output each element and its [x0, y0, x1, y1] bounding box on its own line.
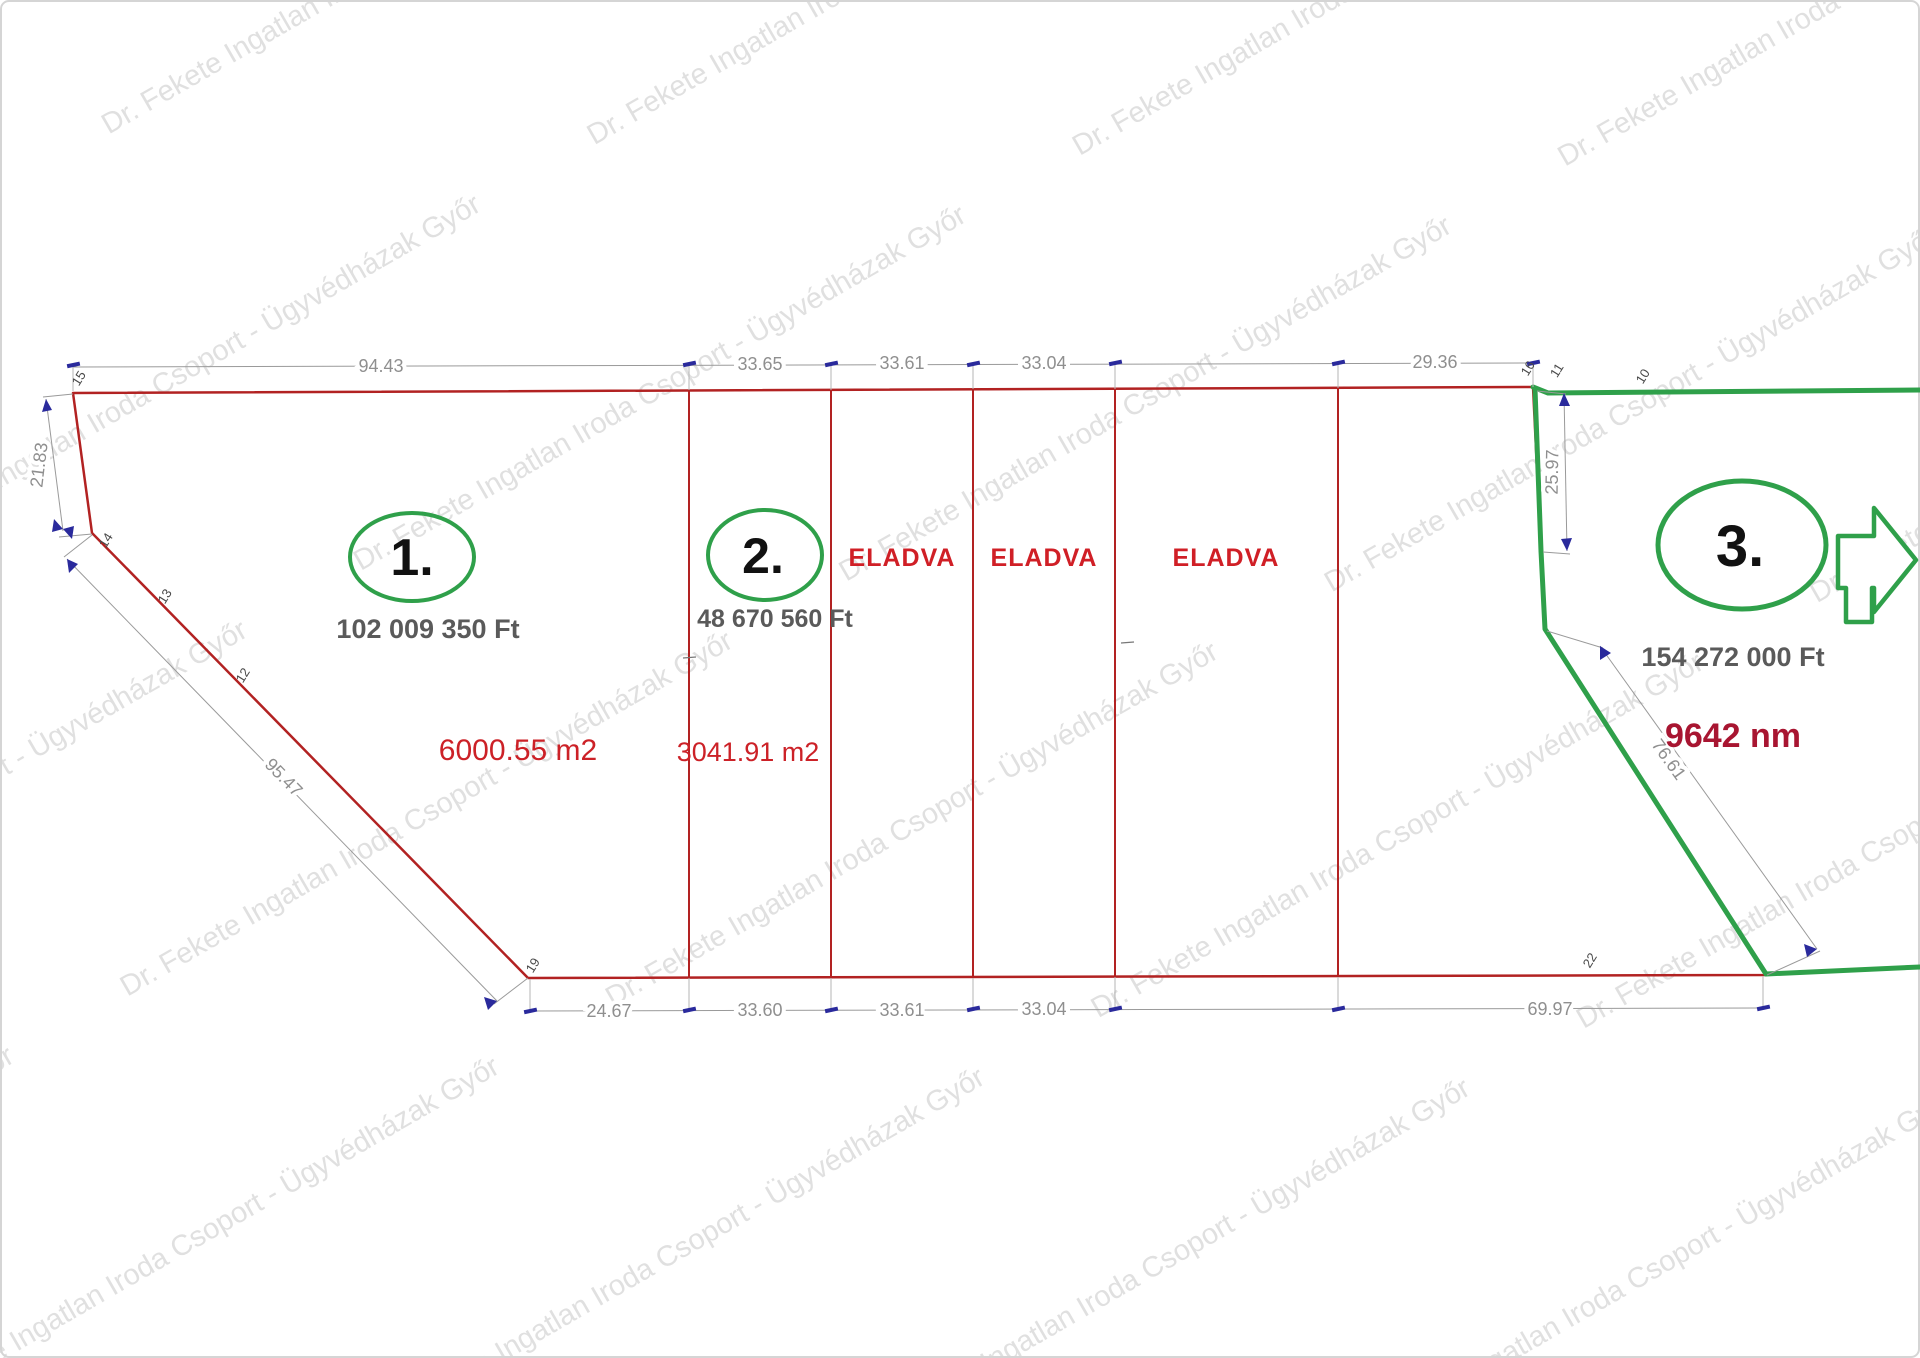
point-15: 15: [69, 368, 89, 388]
watermark-text: Dr. Fekete Ingatlan Iroda Csoport - Ügyv…: [115, 624, 739, 1002]
site-plan-drawing: Dr. Fekete Ingatlan Iroda Csoport - Ügyv…: [0, 0, 1920, 1358]
point-12: 12: [233, 665, 253, 685]
dim-bottom-3: 33.61: [879, 1000, 924, 1020]
top-dimension-line: [73, 363, 1533, 367]
watermark-text: Dr. Fekete Ingatlan Iroda Csoport - Ügyv…: [834, 209, 1458, 587]
dim-left: 21.83: [26, 441, 51, 488]
page-border: [1, 1, 1919, 1357]
watermark-text: Dr. Fekete Ingatlan Iroda Csoport - Ügyv…: [600, 635, 1224, 1013]
plot3-bottom-edge: [1766, 967, 1920, 974]
eladva-label-3: ELADVA: [1173, 544, 1280, 572]
plot1-number: 1.: [390, 529, 433, 587]
plot1-price: 102 009 350 Ft: [336, 614, 519, 644]
dim-bottom-4: 33.04: [1021, 999, 1066, 1019]
point-11: 11: [1547, 361, 1567, 380]
plot2-number: 2.: [742, 528, 784, 584]
watermark-text: Dr. Fekete Ingatlan Iroda Csoport - Ügyv…: [1552, 0, 1920, 173]
plot3-price: 154 272 000 Ft: [1641, 642, 1824, 672]
eladva-label-2: ELADVA: [991, 544, 1098, 572]
watermark-text: Dr. Fekete Ingatlan Iroda Csoport - Ügyv…: [0, 1050, 505, 1358]
watermark-text: Dr. Fekete Ingatlan Iroda Csoport - Ügyv…: [1086, 646, 1710, 1024]
dim-bottom-2: 33.60: [737, 1000, 782, 1020]
plot3-number: 3.: [1716, 514, 1764, 579]
dim-top-4: 33.04: [1021, 353, 1066, 373]
eladva-label-1: ELADVA: [849, 544, 956, 572]
dim-bottom-5: 69.97: [1527, 999, 1572, 1019]
divider-notches: [683, 642, 1134, 658]
plot2-area: 3041.91 m2: [677, 737, 820, 767]
point-19: 19: [523, 955, 543, 975]
dim-top-2: 33.65: [737, 354, 782, 374]
dim-left-diagonal: 95.47: [261, 754, 307, 800]
dimension-labels: 94.43 33.65 33.61 33.04 29.36 24.67 33.6…: [26, 352, 1690, 1021]
dim-top-3: 33.61: [879, 353, 924, 373]
point-13: 13: [155, 586, 175, 606]
dim-bottom-1: 24.67: [586, 1001, 631, 1021]
plot1-area: 6000.55 m2: [439, 734, 597, 767]
dim-right-vertical: 25.97: [1542, 449, 1563, 494]
point-22: 22: [1580, 950, 1600, 970]
watermark-text: Dr. Fekete Ingatlan Iroda Csoport - Ügyv…: [852, 1072, 1476, 1358]
dim-top-5: 29.36: [1412, 352, 1457, 372]
right-vertical-dimension-line: [1564, 393, 1567, 551]
site-plan-page: Dr. Fekete Ingatlan Iroda Csoport - Ügyv…: [0, 0, 1920, 1358]
right-diagonal-dimension-line: [1600, 646, 1817, 949]
plot3-top-edge: [1533, 387, 1920, 393]
point-14: 14: [96, 530, 116, 550]
plot3-area: 9642 nm: [1665, 717, 1801, 755]
watermark-text: Dr. Fekete Ingatlan Iroda Csoport - Ügyv…: [367, 1061, 991, 1358]
plot2-price: 48 670 560 Ft: [697, 605, 853, 633]
watermark-text: Dr. Fekete Ingatlan Iroda Csoport - Ügyv…: [1319, 220, 1920, 598]
dim-top-1: 94.43: [358, 356, 403, 376]
plot3-green-boundary: [1533, 387, 1920, 974]
watermark-text: Dr. Fekete Ingatlan Iroda Csoport - Ügyv…: [0, 1039, 20, 1358]
watermark-layer: Dr. Fekete Ingatlan Iroda Csoport - Ügyv…: [0, 0, 1920, 1358]
